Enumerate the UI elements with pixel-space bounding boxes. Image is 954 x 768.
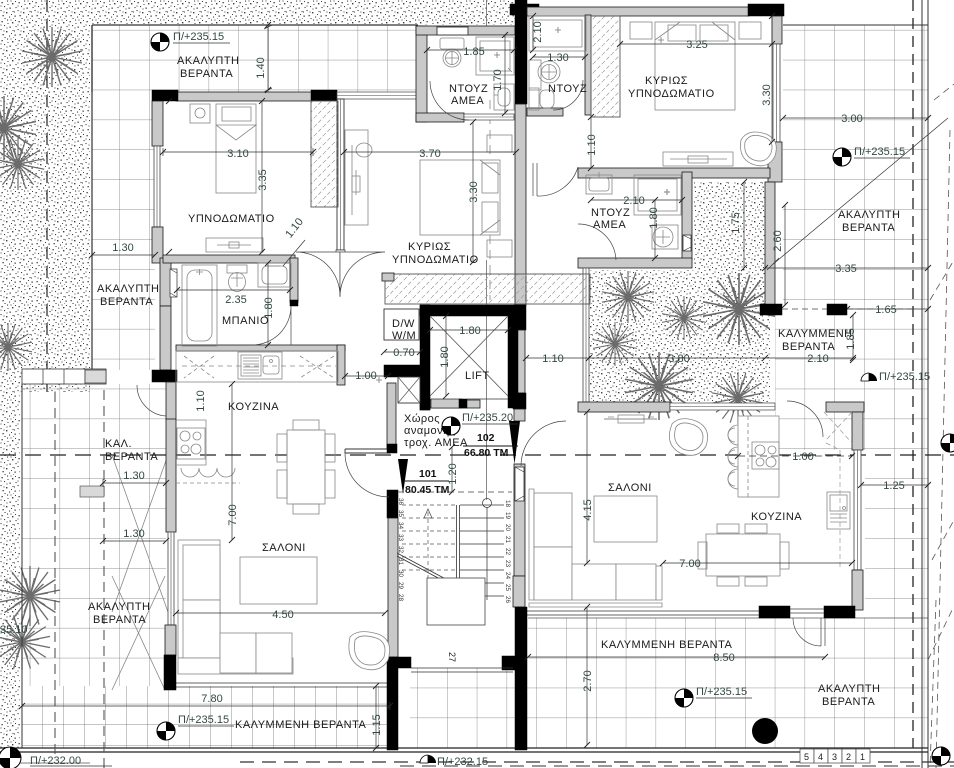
svg-text:ΑΜΕΑ: ΑΜΕΑ: [451, 95, 484, 107]
svg-text:1.15: 1.15: [371, 714, 383, 735]
svg-text:80.45 TM: 80.45 TM: [405, 484, 450, 496]
svg-text:ΝΤΟΥΖ: ΝΤΟΥΖ: [449, 83, 488, 95]
svg-text:Π/+232.00: Π/+232.00: [30, 755, 81, 767]
svg-text:1.25: 1.25: [883, 480, 904, 492]
svg-text:Π/+235.15: Π/+235.15: [696, 686, 747, 698]
svg-text:1.30: 1.30: [123, 528, 144, 540]
svg-text:7.00: 7.00: [227, 504, 239, 525]
svg-text:29: 29: [397, 582, 404, 590]
svg-text:1.80: 1.80: [459, 325, 480, 337]
svg-text:1.10: 1.10: [195, 390, 207, 411]
svg-text:0.70: 0.70: [393, 347, 414, 359]
svg-text:ΑΚΑΛΥΠΤΗ: ΑΚΑΛΥΠΤΗ: [818, 683, 881, 695]
svg-text:2.35: 2.35: [225, 294, 246, 306]
svg-text:22: 22: [504, 548, 511, 556]
svg-text:24: 24: [504, 572, 511, 580]
svg-text:66.80 TM: 66.80 TM: [464, 447, 509, 459]
svg-text:20: 20: [504, 524, 511, 532]
svg-text:28: 28: [397, 594, 404, 602]
svg-text:4.50: 4.50: [272, 609, 293, 621]
svg-text:3.35: 3.35: [835, 263, 856, 275]
svg-text:35.10: 35.10: [0, 624, 28, 636]
svg-text:ΚΟΥΖΙΝΑ: ΚΟΥΖΙΝΑ: [751, 511, 802, 523]
svg-text:ΚΑΛΥΜΜΕΝΗ ΒΕΡΑΝΤΑ: ΚΑΛΥΜΜΕΝΗ ΒΕΡΑΝΤΑ: [235, 719, 367, 731]
svg-text:D/W: D/W: [392, 318, 415, 330]
svg-text:25: 25: [504, 584, 511, 592]
svg-text:5: 5: [804, 752, 809, 762]
svg-text:ΒΕΡΑΝΤΑ: ΒΕΡΑΝΤΑ: [105, 451, 158, 463]
svg-text:3: 3: [832, 752, 837, 762]
svg-text:2.60: 2.60: [772, 230, 784, 251]
svg-text:21: 21: [504, 536, 511, 544]
svg-text:ΒΕΡΑΝΤΑ: ΒΕΡΑΝΤΑ: [93, 614, 146, 626]
svg-text:ΚΑΛΥΜΜΕΝΗ ΒΕΡΑΝΤΑ: ΚΑΛΥΜΜΕΝΗ ΒΕΡΑΝΤΑ: [601, 639, 733, 651]
svg-text:ΥΠΝΟΔΩΜΑΤΙΟ: ΥΠΝΟΔΩΜΑΤΙΟ: [628, 88, 715, 100]
svg-text:1.80: 1.80: [439, 346, 451, 367]
svg-text:1.85: 1.85: [845, 328, 857, 349]
svg-text:ΑΚΑΛΥΠΤΗ: ΑΚΑΛΥΠΤΗ: [838, 209, 901, 221]
svg-text:1.75: 1.75: [730, 212, 742, 233]
svg-text:31: 31: [397, 558, 404, 566]
svg-text:2.10: 2.10: [532, 21, 544, 42]
svg-text:ΥΠΝΟΔΩΜΑΤΙΟ: ΥΠΝΟΔΩΜΑΤΙΟ: [188, 213, 275, 225]
svg-text:1.00: 1.00: [792, 451, 813, 463]
svg-text:Π/+235.15: Π/+235.15: [879, 371, 930, 383]
svg-text:7.80: 7.80: [201, 693, 222, 705]
svg-text:Π/+235.15: Π/+235.15: [854, 146, 905, 158]
svg-text:3.30: 3.30: [761, 84, 773, 105]
svg-text:ΒΕΡΑΝΤΑ: ΒΕΡΑΝΤΑ: [180, 68, 233, 80]
svg-text:ΣΑΛΟΝΙ: ΣΑΛΟΝΙ: [608, 482, 652, 494]
svg-text:Χώρος: Χώρος: [404, 413, 440, 425]
svg-text:ΑΚΑΛΥΠΤΗ: ΑΚΑΛΥΠΤΗ: [88, 601, 151, 613]
svg-text:3.30: 3.30: [468, 181, 480, 202]
svg-text:ΥΠΝΟΔΩΜΑΤΙΟ: ΥΠΝΟΔΩΜΑΤΙΟ: [392, 254, 479, 266]
svg-text:ΝΤΟΥΖ: ΝΤΟΥΖ: [591, 207, 630, 219]
svg-text:ΚΥΡΙΩΣ: ΚΥΡΙΩΣ: [645, 75, 688, 87]
svg-text:ΒΕΡΑΝΤΑ: ΒΕΡΑΝΤΑ: [822, 696, 875, 708]
svg-text:26: 26: [504, 596, 511, 604]
svg-text:ΝΤΟΥΖ: ΝΤΟΥΖ: [548, 83, 587, 95]
svg-text:34: 34: [397, 522, 404, 530]
svg-text:ΚΑΛΥΜΜΕΝΗ: ΚΑΛΥΜΜΕΝΗ: [778, 328, 853, 340]
svg-text:ΑΚΑΛΥΠΤΗ: ΑΚΑΛΥΠΤΗ: [97, 283, 160, 295]
svg-text:1.80: 1.80: [648, 207, 660, 228]
svg-text:ΒΕΡΑΝΤΑ: ΒΕΡΑΝΤΑ: [842, 222, 895, 234]
svg-text:2: 2: [846, 752, 851, 762]
svg-text:35: 35: [397, 510, 404, 518]
svg-text:32: 32: [397, 546, 404, 554]
svg-text:3.70: 3.70: [419, 148, 440, 160]
svg-text:ΚΟΥΖΙΝΑ: ΚΟΥΖΙΝΑ: [228, 401, 279, 413]
svg-text:3.10: 3.10: [227, 148, 248, 160]
svg-text:101: 101: [419, 468, 437, 480]
svg-text:7.00: 7.00: [679, 558, 700, 570]
svg-text:2.10: 2.10: [807, 353, 828, 365]
svg-text:Π/+232.15: Π/+232.15: [437, 756, 488, 768]
svg-text:Π/+235.15: Π/+235.15: [173, 31, 224, 43]
svg-text:ΣΑΛΟΝΙ: ΣΑΛΟΝΙ: [262, 542, 306, 554]
svg-text:ΑΜΕΑ: ΑΜΕΑ: [593, 219, 626, 231]
svg-text:102: 102: [477, 432, 495, 444]
svg-text:1.10: 1.10: [586, 134, 598, 155]
svg-text:ΑΚΑΛΥΠΤΗ: ΑΚΑΛΥΠΤΗ: [177, 55, 240, 67]
svg-text:1.30: 1.30: [123, 470, 144, 482]
svg-text:23: 23: [504, 560, 511, 568]
svg-text:Π/+235.15: Π/+235.15: [178, 714, 229, 726]
svg-text:30: 30: [397, 570, 404, 578]
svg-text:ΒΕΡΑΝΤΑ: ΒΕΡΑΝΤΑ: [100, 296, 153, 308]
svg-text:ΜΠΑΝΙΟ: ΜΠΑΝΙΟ: [222, 315, 269, 327]
svg-text:3.35: 3.35: [257, 169, 269, 190]
svg-text:19: 19: [504, 512, 511, 520]
svg-text:ΒΕΡΑΝΤΑ: ΒΕΡΑΝΤΑ: [782, 341, 835, 353]
svg-text:36: 36: [397, 498, 404, 506]
svg-text:2.10: 2.10: [623, 195, 644, 207]
svg-text:LIFT: LIFT: [465, 370, 490, 382]
svg-text:4: 4: [818, 752, 823, 762]
svg-text:18: 18: [504, 500, 511, 508]
svg-text:3.25: 3.25: [686, 39, 707, 51]
svg-text:8.50: 8.50: [713, 652, 734, 664]
svg-text:2.70: 2.70: [582, 670, 594, 691]
svg-text:1.10: 1.10: [542, 353, 563, 365]
svg-text:ΚΑΛ.: ΚΑΛ.: [105, 438, 132, 450]
svg-text:1.70: 1.70: [492, 69, 504, 90]
svg-text:Π/+235.20: Π/+235.20: [462, 412, 513, 424]
svg-text:τροχ. ΑΜΕΑ: τροχ. ΑΜΕΑ: [404, 437, 468, 449]
svg-text:ΚΥΡΙΩΣ: ΚΥΡΙΩΣ: [408, 241, 451, 253]
svg-text:3.00: 3.00: [841, 113, 862, 125]
svg-text:W/M: W/M: [392, 330, 416, 342]
svg-text:1.65: 1.65: [875, 304, 896, 316]
svg-text:33: 33: [397, 534, 404, 542]
svg-text:1: 1: [860, 752, 865, 762]
svg-text:1.20: 1.20: [447, 463, 459, 484]
svg-text:1.30: 1.30: [547, 52, 568, 64]
svg-text:4.15: 4.15: [582, 499, 594, 520]
svg-text:1.30: 1.30: [112, 242, 133, 254]
svg-text:27: 27: [447, 652, 457, 662]
svg-text:1.40: 1.40: [255, 57, 267, 78]
svg-text:1.00: 1.00: [355, 370, 376, 382]
svg-text:1.85: 1.85: [463, 46, 484, 58]
svg-text:3.80: 3.80: [668, 353, 689, 365]
